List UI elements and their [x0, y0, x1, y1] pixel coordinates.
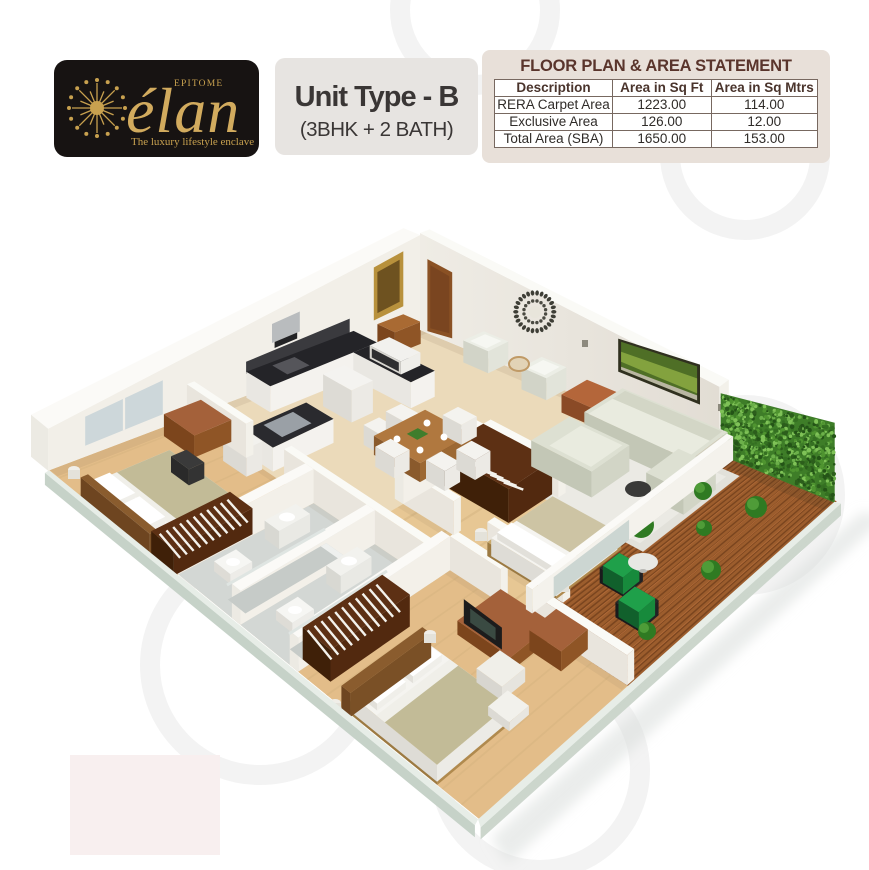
svg-text:The luxury lifestyle enclave: The luxury lifestyle enclave [131, 136, 254, 148]
